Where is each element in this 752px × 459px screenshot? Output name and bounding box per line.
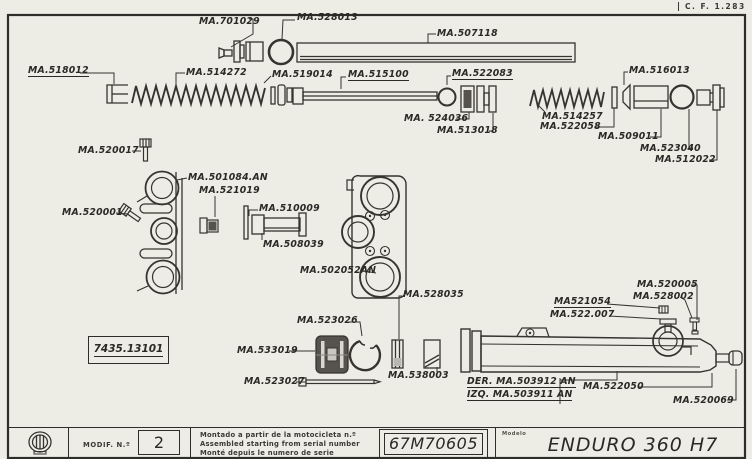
modif-number-box: 2	[138, 430, 180, 455]
part-label-502052: MA.502052AN	[300, 266, 376, 275]
part-drawing-washer-522058	[612, 87, 617, 108]
part-label-528035: MA.528035	[403, 290, 464, 299]
footer-divider-2	[190, 428, 191, 459]
part-label-518012: MA.518012	[28, 66, 89, 77]
serial-note-en: Assembled starting from serial number	[200, 440, 360, 449]
part-label-521019: MA.521019	[199, 186, 260, 195]
part-label-512022: MA.512022	[655, 155, 716, 164]
part-label-520005: MA.520005	[637, 280, 698, 289]
part-label-520017: MA.520017	[78, 146, 139, 155]
part-label-514257: MA.514257	[542, 112, 603, 121]
part-label-514272: MA.514272	[186, 68, 247, 77]
part-label-507118: MA.507118	[437, 29, 498, 38]
part-label-528013: MA.528013	[297, 13, 358, 22]
part-drawing-ring-523040	[671, 86, 694, 109]
part-drawing-spool-513018	[477, 86, 496, 112]
part-drawing-fork-crown	[137, 172, 182, 295]
part-drawing-cup-516013	[623, 85, 630, 109]
part-label-522050: MA.522050	[583, 382, 644, 391]
part-drawing-rod-515100	[293, 88, 437, 104]
part-drawing-clamp-plate	[342, 176, 406, 298]
part-drawing-cylinder-509011	[634, 86, 668, 108]
part-drawing-tube-507118	[297, 43, 575, 62]
part-drawing-pin-523027	[299, 378, 380, 386]
part-drawing-oring-528013	[269, 40, 293, 64]
part-drawing-screw-701029	[219, 41, 263, 62]
part-label-538003: MA.538003	[388, 371, 449, 380]
part-drawing-circlip-523026	[350, 341, 380, 370]
part-label-523040: MA.523040	[640, 144, 701, 153]
footer-divider-1	[68, 428, 69, 459]
footer-divider-3	[495, 428, 496, 459]
footer-bar: MODIF. N.º 2 Montado a partir de la moto…	[8, 427, 745, 459]
serial-number: 67M70605	[384, 433, 483, 455]
part-drawing-spring-514272	[132, 86, 265, 104]
part-label-516013: MA.516013	[629, 66, 690, 75]
part-label-508039: MA.508039	[263, 240, 324, 249]
modif-label: MODIF. N.º	[83, 441, 130, 449]
part-label-501084: MA.501084.AN	[188, 173, 268, 182]
serial-number-box: 67M70605	[379, 429, 488, 458]
part-label-522007: MA.522.007	[550, 310, 615, 319]
serial-notes: Montado a partir de la motocicleta n.º A…	[200, 431, 360, 459]
part-label-524036: MA. 524036	[404, 114, 468, 123]
part-label-701029: MA.701029	[199, 17, 260, 26]
part-label-513018: MA.513018	[437, 126, 498, 135]
parts-diagram-page: C. F. 1.283	[0, 0, 752, 459]
part-drawing-rubber-533019	[316, 336, 348, 373]
part-drawing-cup-518012	[107, 85, 128, 103]
part-label-509011: MA.509011	[598, 132, 659, 141]
model-name: ENDURO 360 H7	[528, 434, 738, 456]
part-label-522058: MA.522058	[540, 122, 601, 131]
part-label-522083: MA.522083	[452, 69, 513, 80]
part-drawing-spring-514257	[530, 90, 604, 107]
part-label-519014: MA.519014	[272, 70, 333, 79]
part-label-503911: IZQ. MA.503911 AN	[467, 390, 572, 401]
part-label-533019: MA.533019	[237, 346, 298, 355]
part-label-520001: MA.520001	[62, 208, 123, 217]
part-label-520069: MA.520069	[673, 396, 734, 405]
part-label-515100: MA.515100	[348, 70, 409, 81]
serial-note-fr: Monté depuis le numero de serie	[200, 449, 360, 458]
stamp-box: 7435.13101	[88, 336, 169, 364]
part-drawing-washer-519014	[271, 85, 292, 105]
part-label-523026: MA.523026	[297, 316, 358, 325]
stamp-ref: 7435.13101	[94, 343, 164, 357]
part-label-521054: MA521054	[554, 297, 611, 308]
part-label-523027: MA.523027	[244, 377, 305, 386]
modif-number: 2	[154, 433, 164, 452]
part-label-503912: DER. MA.503912 AN	[467, 377, 576, 388]
part-drawing-plug-512022	[697, 85, 724, 110]
part-drawing-bolt-520017	[140, 139, 151, 161]
part-drawing-bushing-538003	[424, 340, 440, 368]
part-label-528002: MA.528002	[633, 292, 694, 301]
part-drawing-bushing-528035	[392, 340, 403, 368]
model-label: Modelo	[502, 431, 526, 437]
serial-note-es: Montado a partir de la motocicleta n.º	[200, 431, 360, 440]
part-drawing-bush-524036	[461, 86, 474, 112]
part-drawing-nut-521019	[200, 218, 218, 233]
part-label-510009: MA.510009	[259, 204, 320, 213]
part-drawing-oring-small	[439, 89, 456, 106]
